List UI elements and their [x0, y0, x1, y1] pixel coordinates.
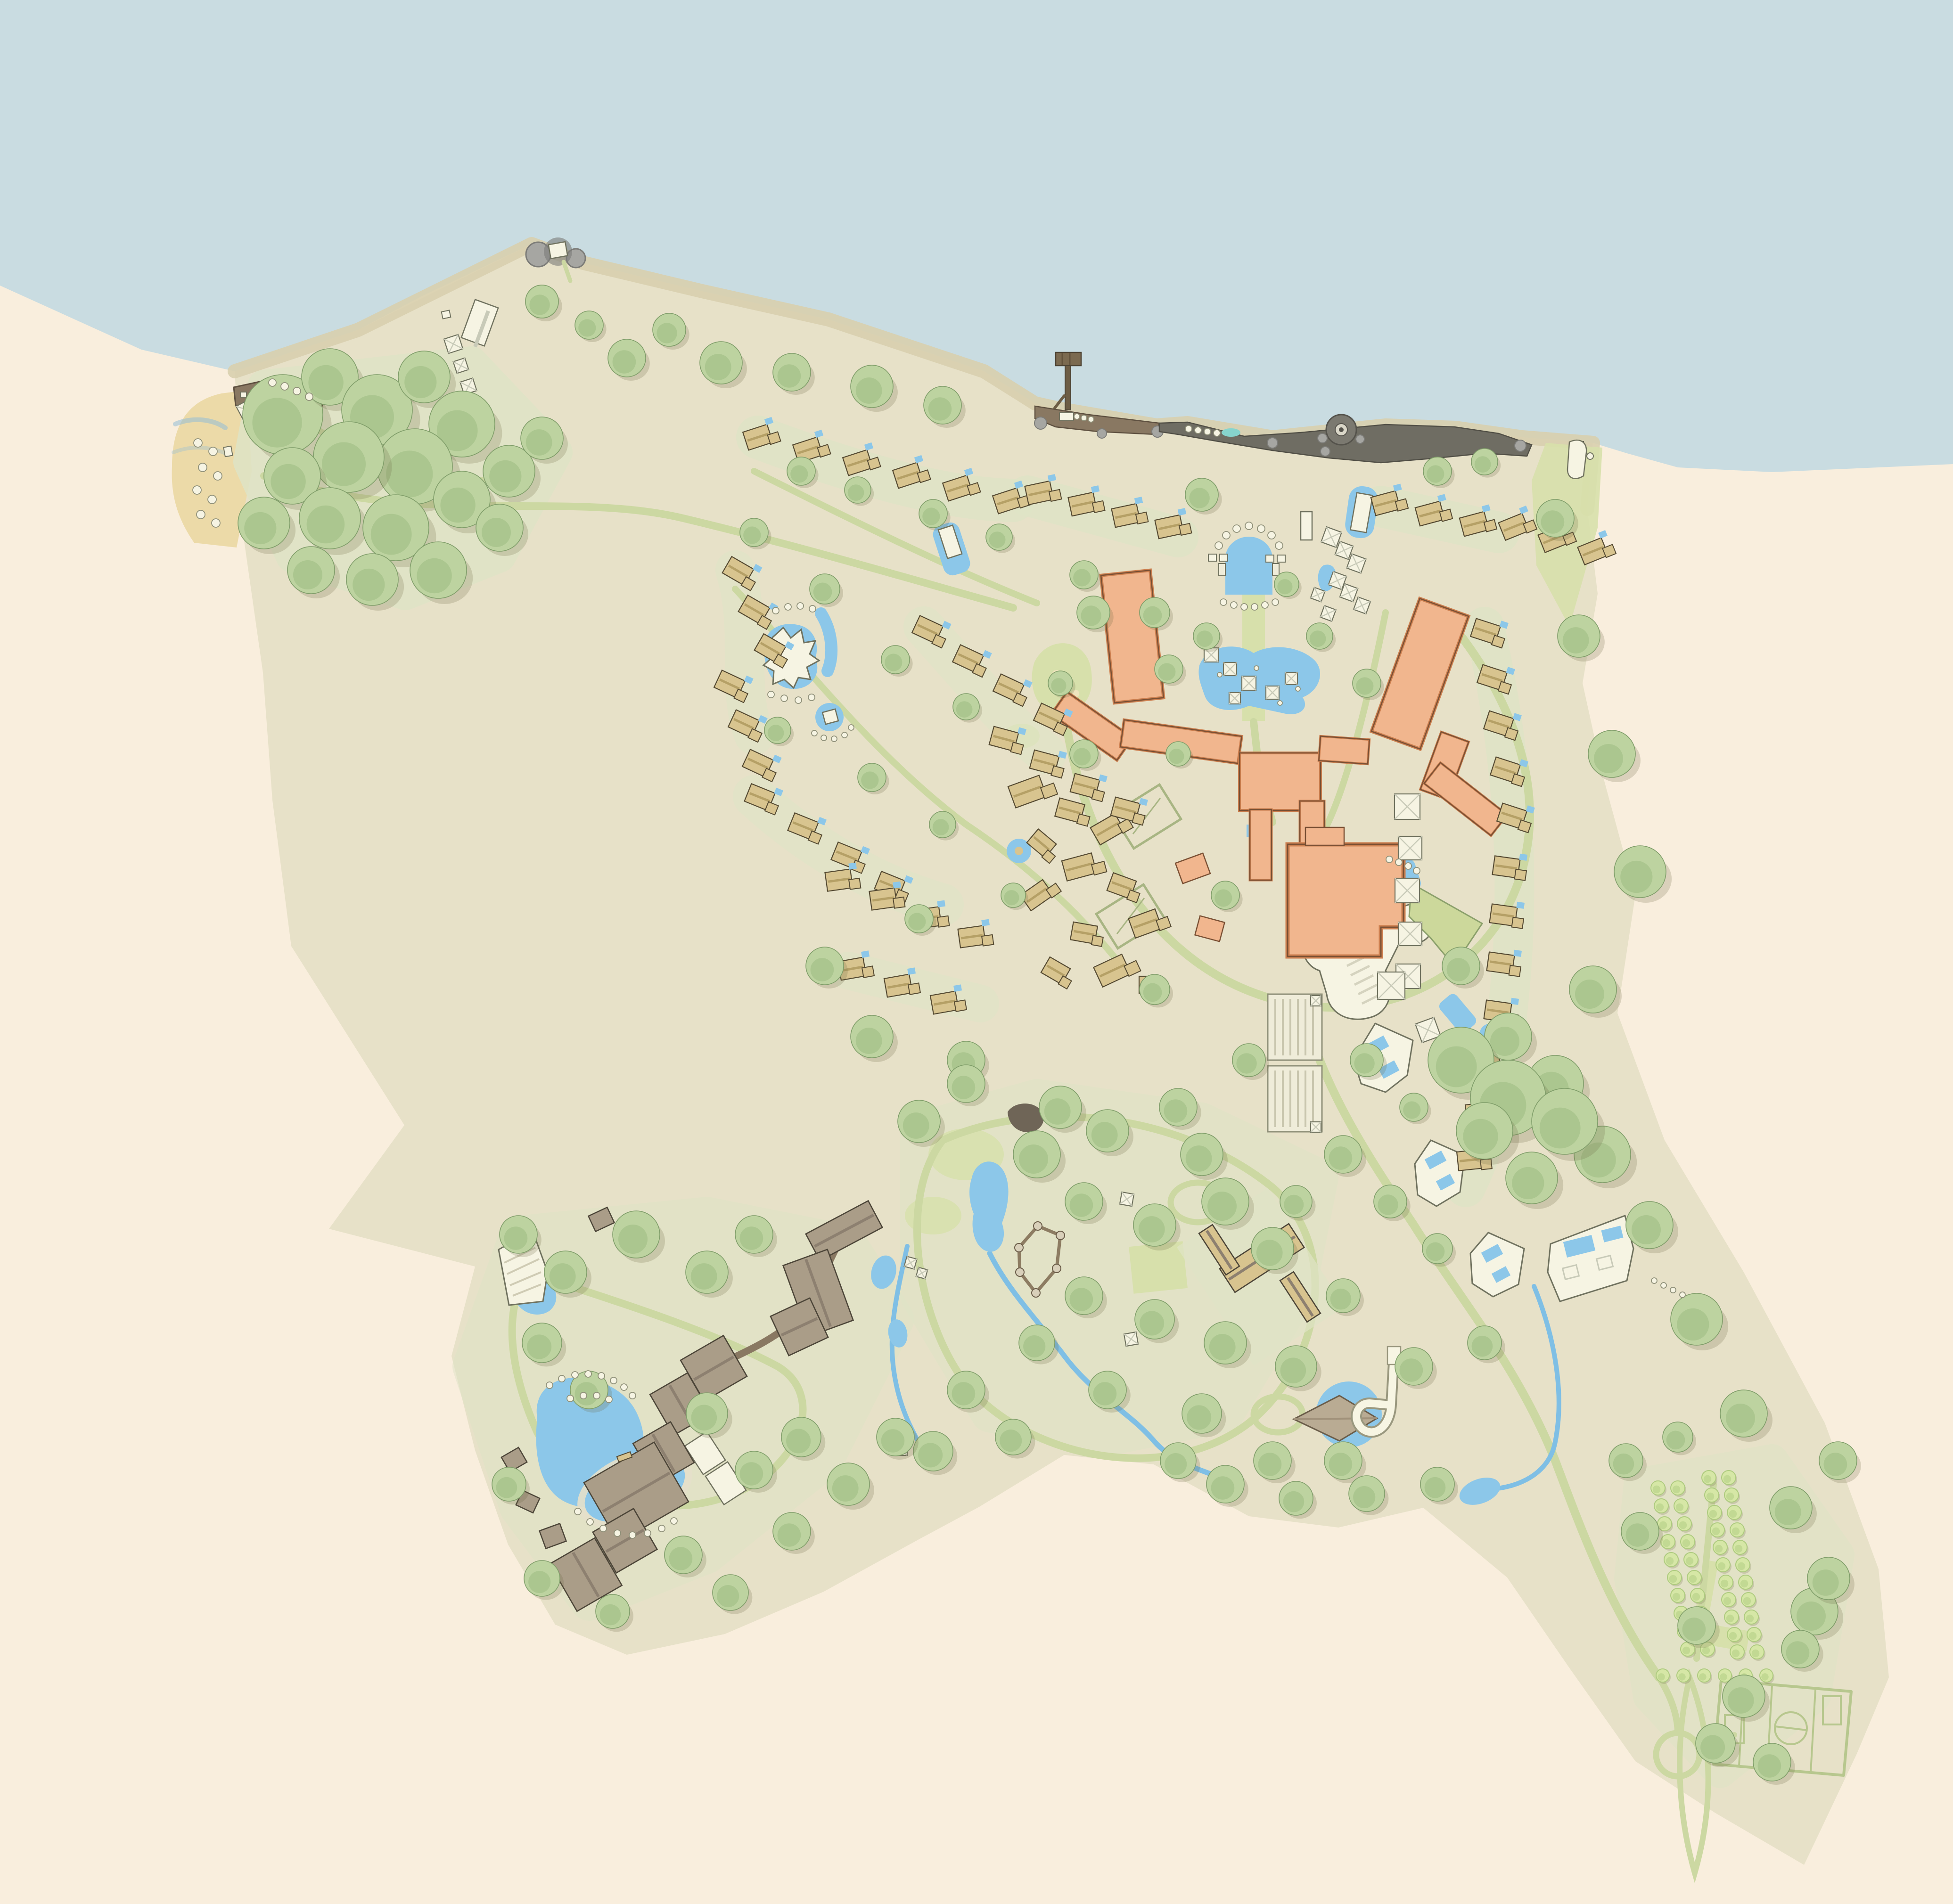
tree-canopy-shade — [1378, 1194, 1398, 1215]
tree-canopy-shade — [956, 701, 973, 718]
west-deck-umbrellas-umbrella-icon — [281, 383, 288, 390]
east-villa-row-villa-wing — [1395, 499, 1408, 511]
star-pond-loungers-umbrella-icon — [781, 695, 788, 702]
north-villa-row-b-villa-wing — [1136, 512, 1149, 524]
lagoon-loungers-umbrella-icon — [606, 1396, 612, 1403]
deck-rock — [1097, 429, 1107, 438]
orchard-block-west-tree-shade — [1679, 1521, 1687, 1529]
tree-canopy-shade — [600, 1604, 621, 1626]
pool-cabana — [1220, 554, 1228, 561]
tree-canopy-shade — [322, 442, 366, 486]
south-villa-arc-b-villa-plunge-pool — [937, 900, 945, 907]
star-pond-loungers-umbrella-icon — [808, 694, 815, 701]
tree-canopy-shade — [740, 1462, 763, 1486]
shelf-umbrellas-umbrella-icon — [1214, 430, 1220, 436]
orchard-block-east-tree-shade — [1729, 1510, 1737, 1518]
tree-canopy-shade — [952, 1076, 976, 1099]
pool-cabana — [1266, 555, 1274, 562]
tree-canopy-shade — [489, 460, 521, 492]
lookout-rock — [1356, 435, 1364, 443]
family-pool-umbrellas-umbrella-icon — [1268, 531, 1275, 539]
tree-canopy-shade — [861, 771, 878, 789]
lagoon-loungers-umbrella-icon — [580, 1392, 587, 1399]
tree-canopy-shade — [1613, 1454, 1634, 1475]
tree-canopy-shade — [778, 1523, 801, 1547]
tree-canopy-shade — [1258, 1453, 1282, 1476]
tree-canopy-shade — [1073, 748, 1091, 765]
tree-canopy-shade — [1813, 1569, 1839, 1596]
east-deck-umbrellas-umbrella-icon — [1081, 415, 1087, 421]
tree-canopy-shade — [1044, 1098, 1071, 1125]
tree-canopy-shade — [928, 397, 952, 421]
tree-canopy-shade — [1023, 1335, 1045, 1357]
slide-shade-fold — [1294, 1418, 1377, 1419]
tree-canopy-shade — [1463, 1119, 1498, 1154]
lagoon-loungers-umbrella-icon — [593, 1392, 600, 1399]
shelf-umbrellas-umbrella-icon — [1204, 428, 1211, 435]
tree-canopy-shade — [353, 569, 385, 601]
tree-canopy-shade — [417, 558, 451, 593]
tree-canopy-shade — [252, 398, 302, 447]
orchard-block-east-tree-shade — [1707, 1493, 1715, 1501]
tree-canopy-shade — [903, 1112, 929, 1139]
villa-lap-loungers-umbrella-icon — [1680, 1292, 1685, 1298]
hotel-east-connector[interactable] — [1319, 736, 1369, 764]
tree-canopy-shade — [1211, 1476, 1235, 1500]
south-villa-arc-b-villa-wing — [849, 878, 861, 890]
lookout-rock — [1318, 433, 1327, 443]
west-deck-umbrellas-umbrella-icon — [269, 379, 276, 386]
tree-canopy-shade — [1277, 579, 1292, 594]
tree-canopy-shade — [1140, 1311, 1164, 1335]
tree-canopy-shade — [1019, 1144, 1048, 1174]
oval-pool-loungers-umbrella-icon — [614, 1530, 621, 1536]
orchard-block-east-tree-shade — [1749, 1632, 1757, 1640]
tree-canopy-shade — [1187, 1405, 1211, 1430]
tree-canopy-shade — [1070, 1193, 1093, 1217]
watchtower-head[interactable] — [1056, 352, 1081, 366]
orchard-block-east-tree-shade — [1709, 1510, 1717, 1518]
tree-canopy-shade — [1472, 1336, 1493, 1357]
fountain-dot — [1015, 847, 1023, 855]
ridge-villa-chain-b-villa-wing — [1515, 869, 1526, 881]
tree-canopy-shade — [1447, 958, 1470, 981]
star-pond-loungers-umbrella-icon — [797, 603, 804, 609]
family-pool-umbrellas-umbrella-icon — [1275, 542, 1283, 549]
tree-canopy-shade — [1354, 1053, 1374, 1073]
tree-canopy-shade — [1004, 890, 1019, 905]
mid-villa-row-b-villa-wing — [1091, 789, 1104, 801]
nw-cabana — [442, 310, 451, 319]
tree-canopy-shade — [578, 319, 596, 336]
tree-canopy-shade — [1726, 1404, 1755, 1433]
tree-canopy-shade — [881, 1429, 905, 1453]
tree-canopy-shade — [1353, 1486, 1375, 1508]
tree-canopy-shade — [1728, 1687, 1754, 1714]
tree-canopy-shade — [1540, 1108, 1581, 1149]
beach-umbrellas-umbrella-icon — [197, 510, 205, 519]
tree-canopy-shade — [1165, 1453, 1187, 1475]
tree-canopy-shade — [1356, 677, 1373, 695]
orchard-block-east-tree-shade — [1746, 1615, 1754, 1623]
lagoon-loungers-umbrella-icon — [610, 1377, 617, 1384]
tree-canopy-shade — [271, 464, 305, 499]
tree-canopy-shade — [1283, 1491, 1305, 1512]
lagoon-loungers-umbrella-icon — [546, 1382, 553, 1389]
tree-canopy-shade — [1666, 1431, 1685, 1450]
tree-canopy-shade — [691, 1405, 717, 1431]
tree-canopy-shade — [691, 1263, 717, 1290]
mid-villa-row-b-villa-wing — [1051, 766, 1064, 778]
shelf-umbrellas-umbrella-icon — [1195, 427, 1201, 433]
pool-cabana — [1277, 555, 1285, 562]
beach-umbrellas-umbrella-icon — [212, 519, 220, 527]
tree-canopy-shade — [1164, 1099, 1188, 1123]
ridge-villa-chain-b-villa-plunge-pool — [1516, 902, 1525, 909]
orchard-block-east-tree-shade — [1743, 1597, 1751, 1605]
lagoon-loungers-umbrella-icon — [567, 1395, 574, 1402]
tree-canopy-shade — [1143, 606, 1162, 625]
orchard-block-west-tree-shade — [1663, 1539, 1671, 1547]
tree-canopy-shade — [550, 1263, 576, 1290]
south-villa-arc-b-villa-plunge-pool — [893, 882, 901, 889]
orchard-block-east-tree-shade — [1726, 1615, 1734, 1623]
orchard-block-west-tree-shade — [1653, 1486, 1661, 1494]
family-pool[interactable] — [1225, 537, 1272, 595]
tree-canopy-shade — [527, 1334, 551, 1359]
shelf-rock — [1515, 440, 1526, 451]
north-villa-row-b-villa-wing — [1179, 523, 1192, 535]
ropes-platform — [1032, 1289, 1040, 1297]
oval-pool-loungers-umbrella-icon — [658, 1525, 665, 1532]
tree-canopy-shade — [1189, 488, 1209, 508]
round-pond-hut[interactable] — [822, 709, 838, 724]
tree-canopy-shade — [1563, 627, 1589, 654]
oval-pool-loungers-umbrella-icon — [574, 1508, 581, 1515]
orchard-block-east-tree-shade — [1723, 1475, 1731, 1483]
family-pool-umbrellas-umbrella-icon — [1257, 525, 1265, 532]
south-villa-arc-b-villa-plunge-pool — [981, 919, 990, 926]
tree-canopy-shade — [813, 583, 832, 602]
orchard-arc-south-tree-shade — [1658, 1673, 1665, 1680]
orchard-block-east-tree-shade — [1712, 1528, 1720, 1536]
south-villa-pair-villa-wing — [954, 1000, 967, 1011]
family-pool-umbrellas-umbrella-icon — [1245, 522, 1253, 530]
lagoon-loungers-umbrella-icon — [558, 1375, 565, 1382]
orchard-block-east-tree-shade — [1718, 1562, 1726, 1570]
islet-pavilion[interactable] — [549, 242, 568, 259]
tree-canopy-shade — [371, 514, 412, 555]
west-deck-umbrellas-umbrella-icon — [293, 387, 301, 395]
north-villa-row-b-villa-wing — [1049, 490, 1062, 501]
pool-steps — [1272, 564, 1279, 576]
family-pool-umbrellas-umbrella-icon — [1215, 542, 1223, 549]
family-pool-umbrellas-umbrella-icon — [1233, 525, 1240, 532]
south-villa-pair-villa-wing — [862, 966, 874, 977]
south-villa-pair-villa-plunge-pool — [907, 967, 916, 975]
star-pond-loungers-umbrella-icon — [795, 697, 802, 703]
tree-canopy-shade — [922, 507, 940, 525]
lap-house[interactable] — [1301, 512, 1312, 540]
east-deck-umbrellas-umbrella-icon — [1088, 417, 1094, 422]
shelf-rock — [1267, 438, 1278, 448]
tree-canopy-shade — [1775, 1499, 1801, 1525]
tree-canopy-shade — [1329, 1453, 1353, 1476]
tree-canopy-shade — [1330, 1289, 1352, 1310]
east-villa-row-villa-wing — [1484, 520, 1497, 532]
orchard-block-west-tree-shade — [1673, 1486, 1681, 1494]
ropes-platform — [1056, 1231, 1065, 1240]
hotel-south-stub[interactable] — [1250, 809, 1272, 880]
tree-canopy-shade — [1700, 1735, 1725, 1759]
tree-canopy-shade — [885, 654, 902, 671]
villa-lap-loungers-umbrella-icon — [1670, 1287, 1676, 1293]
resort-map — [0, 0, 1953, 1904]
star-pond-loungers-umbrella-icon — [768, 691, 774, 698]
tree-canopy-shade — [656, 323, 677, 343]
resort-map-stage — [0, 0, 1953, 1904]
orchard-block-west-tree-shade — [1686, 1557, 1694, 1565]
deck-rock — [1034, 417, 1047, 429]
south-villa-arc-b-villa-wing — [937, 916, 949, 927]
cottage-wing — [1077, 814, 1090, 826]
tree-canopy-shade — [1186, 1145, 1212, 1172]
tree-canopy-shade — [1000, 1430, 1022, 1452]
swimup-dots-umbrella-icon — [1217, 672, 1222, 677]
star-pond-loungers-umbrella-icon — [809, 605, 816, 612]
south-villa-pair-villa-plunge-pool — [861, 950, 870, 958]
tree-canopy-shade — [1073, 569, 1091, 586]
tree-canopy-shade — [1169, 749, 1184, 764]
beach-umbrellas-umbrella-icon — [193, 486, 201, 494]
tree-canopy-shade — [482, 518, 511, 547]
tree-canopy-shade — [504, 1226, 528, 1250]
tree-canopy-shade — [1400, 1358, 1423, 1382]
tree-canopy-shade — [1091, 1122, 1118, 1148]
tree-canopy-shade — [1427, 465, 1444, 482]
tree-canopy-shade — [496, 1477, 517, 1498]
tree-canopy-shade — [1214, 889, 1232, 907]
tree-canopy-shade — [613, 350, 636, 374]
orchard-block-east-tree-shade — [1721, 1580, 1729, 1588]
tree-canopy-shade — [1070, 1288, 1093, 1311]
tree-canopy-shade — [786, 1429, 811, 1453]
tree-canopy-shade — [1786, 1641, 1810, 1665]
south-villa-pair-villa-plunge-pool — [953, 984, 962, 992]
tree-canopy-shade — [1575, 980, 1604, 1009]
family-pool-loungers-umbrella-icon — [1220, 599, 1227, 605]
tree-canopy-shade — [1824, 1453, 1847, 1476]
swimup-dots-umbrella-icon — [1278, 701, 1282, 705]
pool-steps — [1219, 564, 1225, 576]
ropes-platform — [1016, 1268, 1024, 1276]
tree-canopy-shade — [308, 365, 343, 400]
tree-canopy-shade — [1310, 630, 1326, 647]
ridge-villa-chain-b-villa-wing — [1509, 965, 1521, 977]
lookout-hub — [1339, 427, 1344, 432]
orchard-block-east-tree-shade — [1735, 1545, 1743, 1553]
tree-canopy-shade — [307, 506, 345, 544]
tree-canopy-shade — [856, 1028, 882, 1054]
tree-canopy-shade — [933, 819, 949, 835]
tree-canopy-shade — [1329, 1146, 1353, 1170]
tree-canopy-shade — [1797, 1602, 1826, 1631]
tree-canopy-shade — [1207, 1192, 1237, 1221]
beach-umbrellas-umbrella-icon — [213, 472, 222, 480]
tree-canopy-shade — [768, 725, 784, 741]
deck-cabana — [240, 392, 246, 397]
family-pool-loungers-umbrella-icon — [1231, 602, 1237, 608]
tree-canopy-shade — [908, 913, 926, 930]
tree-canopy-shade — [404, 366, 436, 398]
star-pond-loungers-umbrella-icon — [772, 607, 779, 614]
tree-canopy-shade — [1426, 1242, 1445, 1261]
ropes-platform — [1052, 1264, 1061, 1273]
family-pool-loungers-umbrella-icon — [1241, 604, 1247, 610]
tree-canopy-shade — [1143, 983, 1162, 1002]
tree-canopy-shade — [1197, 630, 1213, 647]
lagoon-loungers-umbrella-icon — [629, 1392, 636, 1399]
tree-canopy-shade — [743, 526, 761, 544]
round-pond-loungers-umbrella-icon — [848, 725, 854, 730]
lagoon-loungers-umbrella-icon — [585, 1371, 591, 1377]
orchard-block-east-tree-shade — [1726, 1493, 1734, 1501]
tree-canopy-shade — [1403, 1101, 1420, 1119]
orchard-block-west-tree-shade — [1689, 1575, 1697, 1583]
point-pavilion[interactable] — [1567, 440, 1586, 479]
tree-canopy-shade — [1682, 1618, 1706, 1641]
round-pond-loungers-umbrella-icon — [821, 735, 827, 741]
tree-canopy-shade — [856, 377, 882, 404]
orchard-block-west-tree-shade — [1656, 1504, 1664, 1512]
orchard-arc-south-tree-shade — [1720, 1673, 1727, 1680]
spa-lap-loungers-umbrella-icon — [1386, 856, 1393, 863]
orchard-block-east-tree-shade — [1715, 1545, 1723, 1553]
orchard-block-east-tree-shade — [1752, 1650, 1760, 1658]
shelf-rock — [1321, 447, 1330, 456]
spa-lap-loungers-umbrella-icon — [1413, 867, 1420, 874]
tree-canopy-shade — [1620, 861, 1652, 893]
orchard-arc-south-tree-shade — [1678, 1673, 1685, 1680]
oval-pool-loungers-umbrella-icon — [644, 1530, 651, 1536]
tree-canopy-shade — [811, 958, 834, 981]
tree-canopy-shade — [1512, 1167, 1544, 1199]
oval-pool-loungers-umbrella-icon — [671, 1518, 677, 1524]
park-pond — [969, 1161, 1008, 1251]
cove-cabana — [223, 446, 232, 457]
orchard-block-west-tree-shade — [1682, 1647, 1690, 1655]
beach-umbrellas-umbrella-icon — [209, 447, 217, 456]
ridge-villa-chain-b-villa-plunge-pool — [1510, 998, 1519, 1005]
tree-canopy-shade — [778, 364, 801, 388]
beach-umbrellas-umbrella-icon — [198, 463, 207, 472]
tree-canopy-shade — [848, 484, 864, 501]
ridge-villa-chain-b-villa-plunge-pool — [1513, 950, 1522, 957]
shelf-umbrellas-umbrella-icon — [1185, 425, 1192, 432]
tree-canopy-shade — [669, 1547, 693, 1570]
tree-canopy-shade — [386, 450, 433, 497]
tree-canopy-shade — [1280, 1358, 1306, 1384]
orchard-block-east-tree-shade — [1740, 1580, 1748, 1588]
cottage-wing — [1091, 935, 1103, 946]
orchard-block-west-tree-shade — [1676, 1504, 1684, 1512]
orchard-block-west-tree-shade — [1692, 1593, 1700, 1601]
tree-canopy-shade — [705, 354, 731, 380]
round-pond-loungers-umbrella-icon — [842, 732, 847, 738]
oval-pool-loungers-umbrella-icon — [600, 1525, 607, 1532]
south-villa-pair-villa-wing — [908, 983, 920, 994]
tree-canopy-shade — [1051, 678, 1066, 693]
tree-canopy-shade — [1594, 744, 1623, 773]
tree-canopy-shade — [529, 294, 550, 315]
south-villa-arc-b-villa-wing — [893, 897, 905, 908]
tree-canopy-shade — [526, 429, 552, 456]
tree-canopy-shade — [790, 465, 808, 482]
tree-canopy-shade — [440, 488, 475, 523]
orchard-block-east-tree-shade — [1723, 1597, 1731, 1605]
oval-pool-loungers-umbrella-icon — [629, 1532, 636, 1538]
lagoon-loungers-umbrella-icon — [621, 1384, 627, 1390]
spa-lap-loungers-umbrella-icon — [1395, 859, 1402, 866]
orchard-block-west-tree-shade — [1682, 1539, 1690, 1547]
villa-lap-loungers-umbrella-icon — [1661, 1283, 1666, 1288]
mid-villa-row-b-villa-wing — [1010, 742, 1023, 754]
watchtower-pole — [1065, 366, 1071, 410]
banquet-porch — [1305, 827, 1344, 845]
round-pond-loungers-umbrella-icon — [831, 736, 837, 742]
south-villa-arc-b-villa-plunge-pool — [848, 863, 857, 870]
shelf-teal-pocket — [1222, 428, 1240, 437]
beach-umbrellas-umbrella-icon — [208, 495, 216, 504]
orchard-block-east-tree-shade — [1704, 1475, 1712, 1483]
orchard-block-west-tree-shade — [1666, 1557, 1674, 1565]
pool-cabana — [1208, 554, 1216, 561]
tree-canopy-shade — [293, 560, 322, 589]
tree-canopy-shade — [1541, 510, 1565, 534]
swimup-dots-umbrella-icon — [1254, 666, 1259, 670]
lagoon-loungers-umbrella-icon — [572, 1372, 578, 1378]
east-villa-row-villa-wing — [1440, 509, 1452, 522]
tree-canopy-shade — [1236, 1053, 1256, 1073]
ropes-platform — [1015, 1243, 1023, 1252]
family-pool-loungers-umbrella-icon — [1262, 602, 1268, 608]
tree-canopy-shade — [1436, 1046, 1477, 1087]
tree-canopy-shade — [1284, 1195, 1304, 1215]
swimup-dots-umbrella-icon — [1296, 686, 1300, 691]
orchard-block-east-tree-shade — [1729, 1632, 1737, 1640]
west-deck-umbrellas-umbrella-icon — [305, 393, 313, 400]
tree-canopy-shade — [952, 1382, 976, 1406]
ropes-platform — [1034, 1222, 1042, 1230]
tree-canopy-shade — [1758, 1754, 1781, 1778]
orchard-arc-south-tree-shade — [1761, 1673, 1768, 1680]
tree-canopy-shade — [1475, 456, 1491, 473]
deck-cabana-east — [1059, 413, 1074, 421]
spa-lap-loungers-umbrella-icon — [1405, 863, 1411, 869]
point-flag — [1587, 453, 1593, 459]
tree-canopy-shade — [717, 1585, 739, 1607]
tree-canopy-shade — [832, 1475, 859, 1502]
tree-canopy-shade — [1139, 1216, 1165, 1242]
ridge-villa-chain-b-villa-plunge-pool — [1519, 854, 1527, 861]
orchard-arc-south-tree-shade — [1699, 1673, 1706, 1680]
tree-canopy-shade — [244, 512, 276, 544]
tree-canopy-shade — [1081, 605, 1101, 626]
orchard-block-west-tree-shade — [1673, 1593, 1681, 1601]
lagoon-loungers-umbrella-icon — [598, 1373, 605, 1379]
family-pool-umbrellas-umbrella-icon — [1223, 531, 1230, 539]
tree-canopy-shade — [1209, 1334, 1236, 1360]
